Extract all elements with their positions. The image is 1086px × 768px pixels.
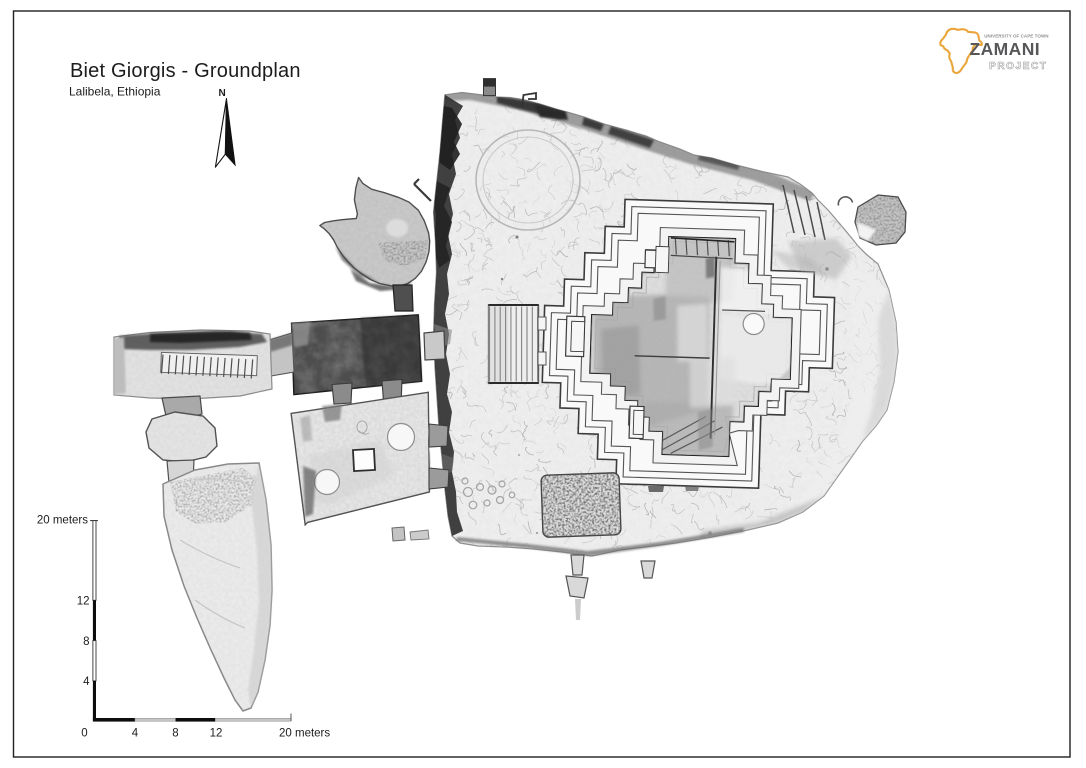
svg-text:PROJECT: PROJECT bbox=[989, 61, 1047, 72]
svg-text:20 meters: 20 meters bbox=[279, 728, 330, 740]
svg-text:Lalibela, Ethiopia: Lalibela, Ethiopia bbox=[69, 85, 161, 99]
svg-text:Biet Giorgis - Groundplan: Biet Giorgis - Groundplan bbox=[70, 60, 301, 82]
svg-text:0: 0 bbox=[81, 728, 87, 740]
svg-text:12: 12 bbox=[210, 728, 223, 740]
svg-text:4: 4 bbox=[83, 676, 90, 688]
svg-text:ZAMANI: ZAMANI bbox=[970, 39, 1040, 59]
svg-text:N: N bbox=[219, 88, 226, 99]
svg-text:UNIVERSITY OF CAPE TOWN: UNIVERSITY OF CAPE TOWN bbox=[984, 34, 1048, 39]
svg-text:8: 8 bbox=[83, 636, 89, 648]
svg-text:12: 12 bbox=[77, 596, 90, 608]
svg-text:20 meters: 20 meters bbox=[37, 515, 88, 527]
svg-text:4: 4 bbox=[132, 728, 139, 740]
svg-text:8: 8 bbox=[172, 728, 178, 740]
